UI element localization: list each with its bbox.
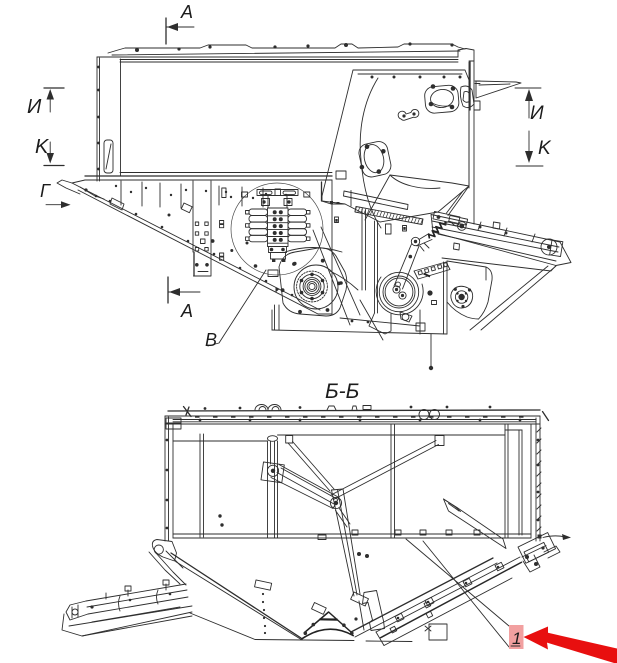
svg-text:А: А	[180, 2, 193, 22]
svg-text:Г: Г	[40, 181, 51, 201]
svg-text:И: И	[27, 96, 42, 118]
svg-text:1: 1	[512, 629, 521, 648]
svg-text:И: И	[530, 103, 544, 124]
svg-text:K: K	[35, 136, 50, 158]
svg-text:В: В	[205, 330, 217, 350]
svg-text:K: K	[538, 138, 552, 159]
svg-text:Б-Б: Б-Б	[325, 380, 359, 403]
svg-text:А: А	[180, 301, 193, 321]
